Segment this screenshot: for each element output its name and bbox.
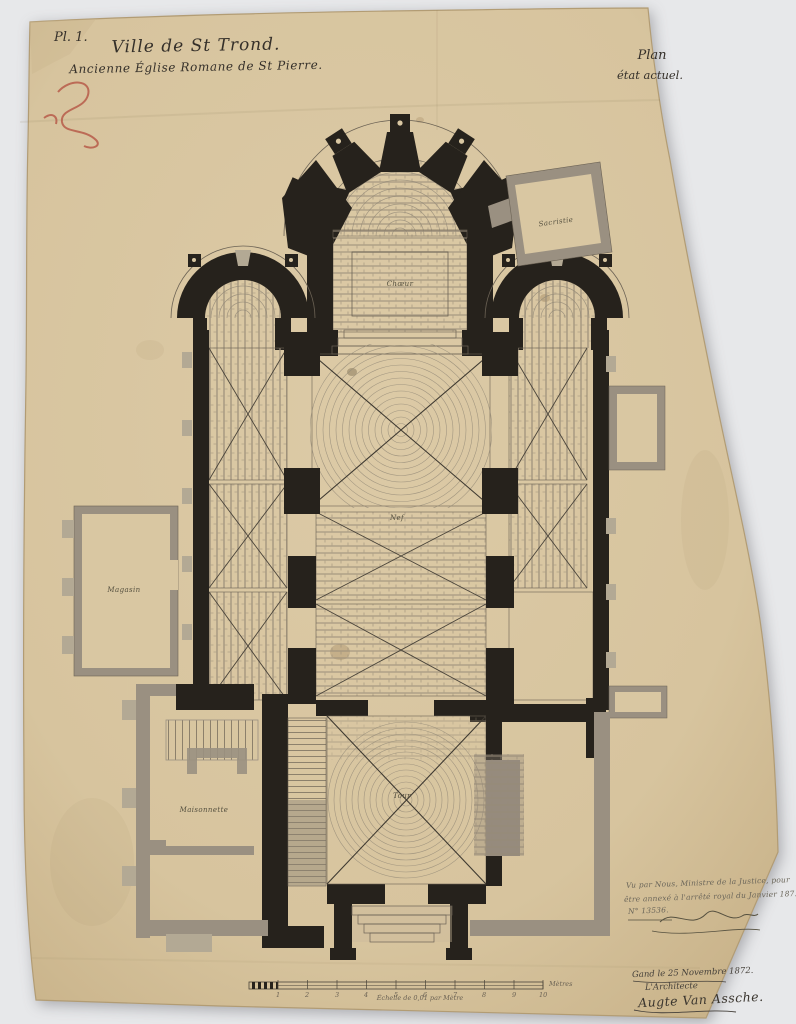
scale-tick: 3 [335, 991, 339, 999]
west-porch-steps [352, 906, 452, 942]
plan-drawing [0, 0, 796, 1024]
scale-tick: 7 [453, 991, 457, 999]
scale-tick: 4 [364, 991, 368, 999]
nave-group [316, 512, 486, 696]
scanned-drawing-page: Pl. 1. Ville de St Trond. Ancienne Églis… [0, 0, 796, 1024]
scale-tick: 6 [423, 991, 427, 999]
scale-tick: 9 [512, 991, 516, 999]
scale-tick: 10 [539, 991, 547, 999]
scale-tick: 5 [394, 991, 398, 999]
scale-tick: 8 [482, 991, 486, 999]
magasin-group [62, 506, 178, 676]
scale-tick: 2 [305, 991, 309, 999]
scale-tick: 1 [276, 991, 280, 999]
